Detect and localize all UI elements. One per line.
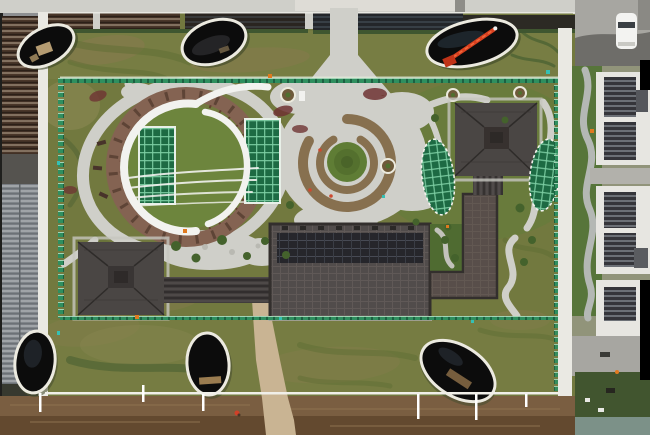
guardrail-top xyxy=(60,78,558,84)
left-roof-gap xyxy=(2,154,38,184)
aerial-photo-stage: Aerial drone photo: rooftop garden of a … xyxy=(0,0,650,435)
rail-curb xyxy=(60,77,558,79)
main-hall xyxy=(268,224,432,321)
fence-rail xyxy=(45,392,560,395)
rooftop-garden-photo: Aerial drone photo: rooftop garden of a … xyxy=(0,0,650,435)
offsite-lower-court xyxy=(572,336,650,376)
ne-pavilion xyxy=(455,103,537,176)
louvered-skylight xyxy=(604,287,636,321)
white-van xyxy=(616,13,637,49)
offsite-unit-2 xyxy=(596,186,650,274)
ne-corridor xyxy=(473,174,503,195)
teal-canal-strip xyxy=(572,417,650,435)
louvered-skylight xyxy=(604,77,636,117)
trellis-panel-east xyxy=(245,119,280,203)
round-planter xyxy=(514,87,526,99)
guardrail-left xyxy=(58,78,64,318)
dark-divider-top xyxy=(640,60,650,90)
rooftop-unit xyxy=(634,248,648,268)
solar-panel-band xyxy=(277,233,423,263)
top-concrete-joint xyxy=(455,0,465,12)
trellis-panel-inside-ring xyxy=(139,127,175,204)
louver-gap xyxy=(305,13,313,29)
court-object xyxy=(600,352,610,357)
inner-courtyard xyxy=(430,224,463,272)
dark-object xyxy=(606,388,615,393)
band-edge-highlight xyxy=(48,12,575,14)
right-parapet xyxy=(558,28,572,396)
white-speck xyxy=(598,408,604,412)
hedge-row-left xyxy=(48,29,308,33)
asphalt-curve xyxy=(575,32,650,66)
louvered-skylight xyxy=(604,233,636,267)
offsite-dark-lawn xyxy=(575,372,650,417)
van-windshield xyxy=(618,22,635,28)
right-offsite-area xyxy=(572,0,650,435)
top-concrete-bright xyxy=(295,0,465,11)
mound-top xyxy=(341,156,353,168)
top-street-strip xyxy=(0,0,650,14)
dark-divider xyxy=(640,280,650,380)
offsite-gap xyxy=(590,168,650,184)
louvered-skylight xyxy=(604,122,636,160)
street-edge xyxy=(638,0,650,30)
van-hood xyxy=(618,42,635,46)
round-planter xyxy=(281,88,295,102)
rooftop-unit xyxy=(636,90,648,112)
orange-dot xyxy=(615,370,619,374)
left-top-concrete xyxy=(0,0,48,13)
louvered-skylight xyxy=(604,192,636,228)
white-speck xyxy=(585,398,590,402)
sw-pavilion xyxy=(78,242,164,315)
louver-gap-2 xyxy=(93,13,100,29)
white-bench-box xyxy=(299,91,305,101)
sw-corridor xyxy=(164,277,270,303)
round-planter xyxy=(381,159,395,173)
